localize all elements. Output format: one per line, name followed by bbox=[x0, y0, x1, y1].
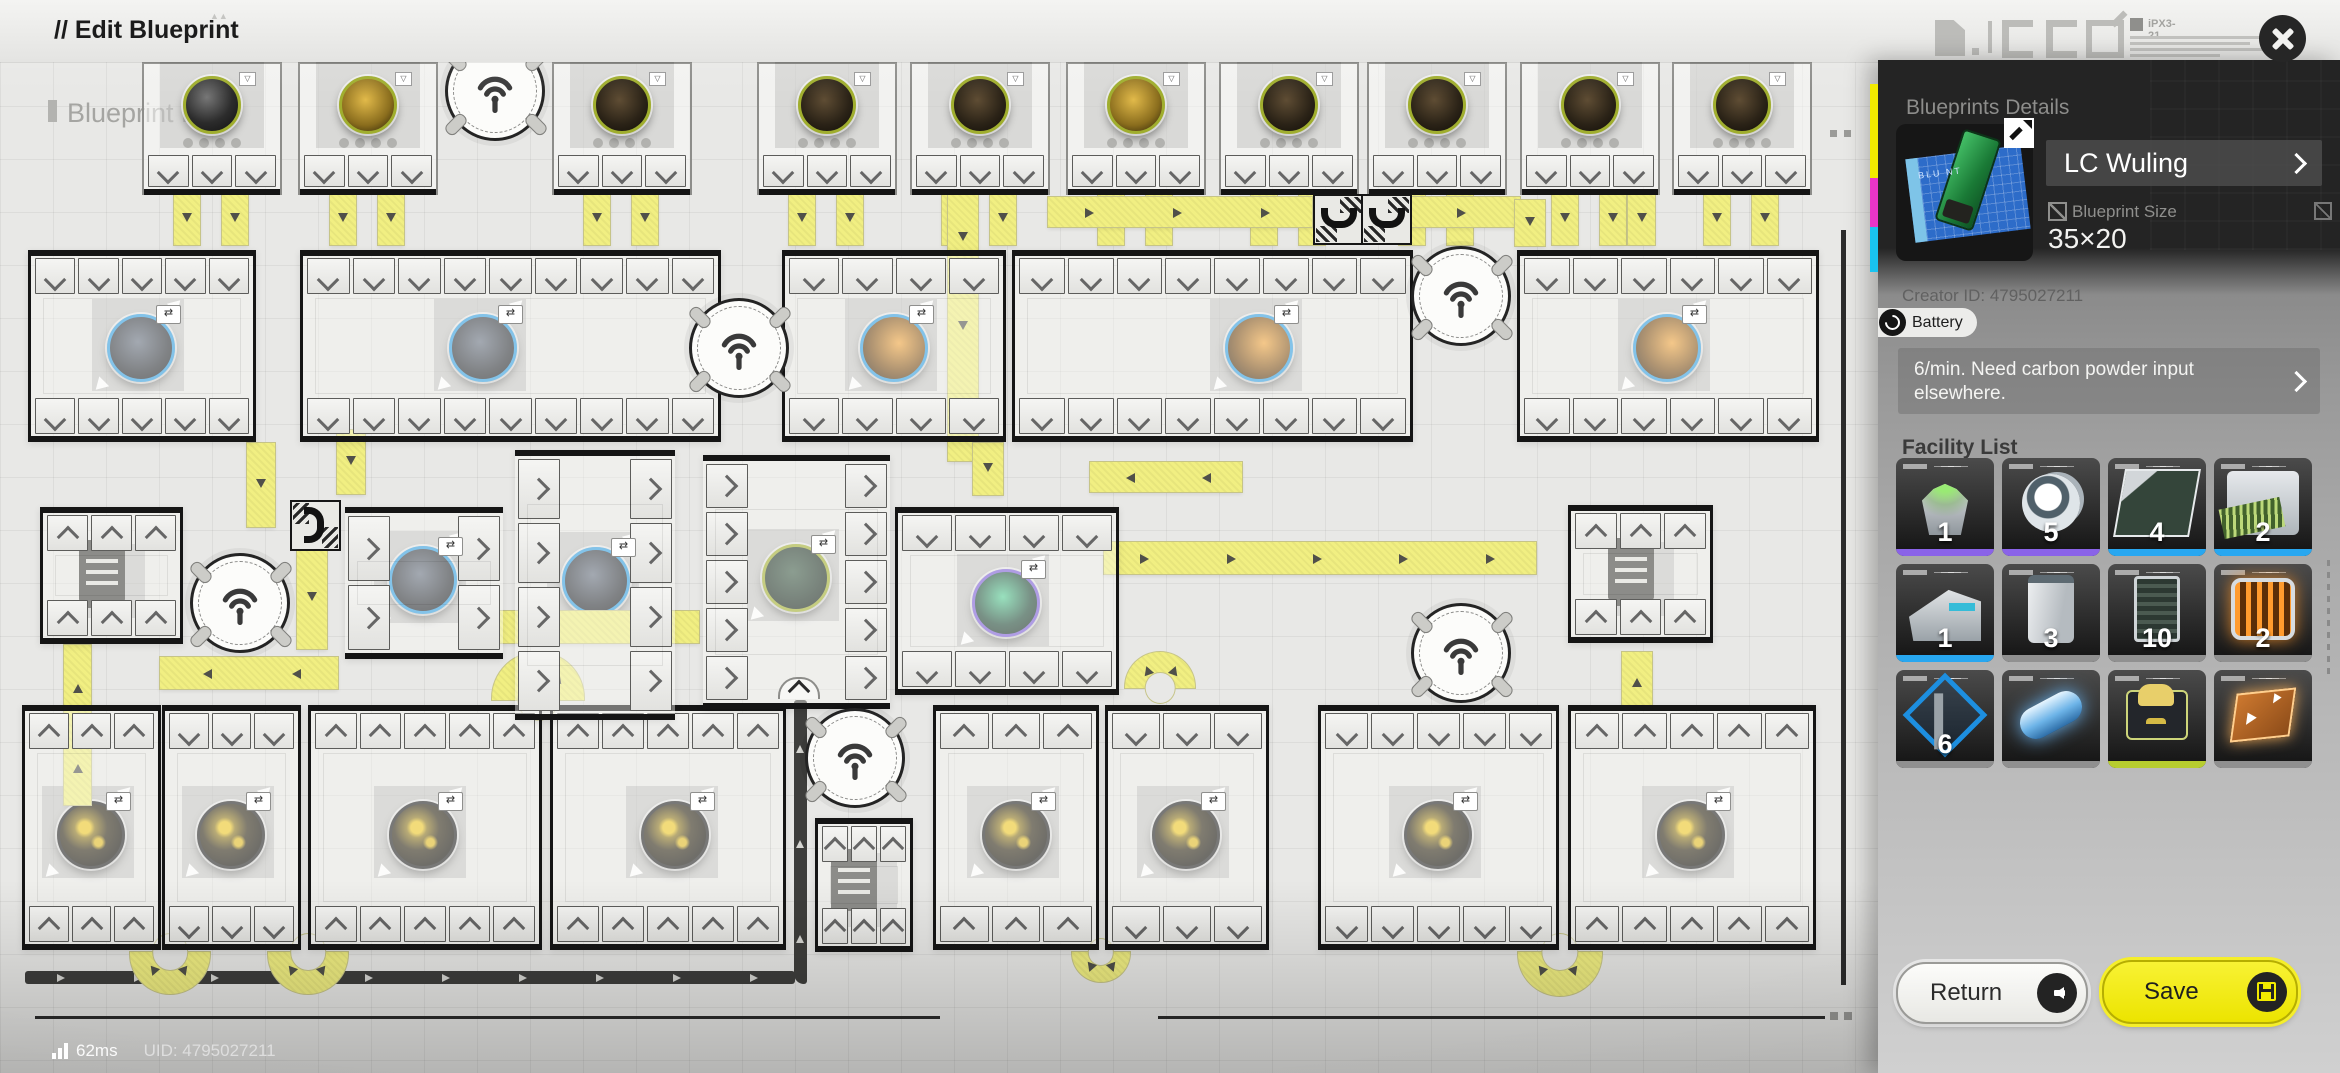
port-column bbox=[518, 459, 560, 711]
antenna-icon bbox=[833, 735, 877, 781]
conveyor-belt[interactable] bbox=[584, 193, 610, 245]
chevron-up-icon bbox=[853, 919, 876, 942]
port bbox=[1526, 155, 1567, 187]
port bbox=[1765, 155, 1806, 187]
port bbox=[1062, 651, 1112, 687]
chevron-up-icon bbox=[1005, 917, 1028, 940]
sorter-tile[interactable] bbox=[290, 500, 341, 551]
chevron-up-icon bbox=[1681, 917, 1704, 940]
belt-arrow-icon bbox=[182, 213, 192, 227]
swap-io-icon[interactable]: ⇄ bbox=[611, 538, 636, 557]
port bbox=[1417, 906, 1460, 942]
port bbox=[822, 826, 848, 862]
swap-io-icon[interactable]: ⇄ bbox=[690, 792, 715, 811]
production-building[interactable] bbox=[300, 250, 721, 442]
swap-io-icon[interactable]: ⇄ bbox=[909, 305, 934, 324]
port bbox=[960, 155, 1001, 187]
sorter-tile[interactable] bbox=[1313, 194, 1364, 245]
port-row bbox=[1015, 396, 1410, 442]
production-building[interactable] bbox=[782, 250, 1006, 442]
production-building[interactable] bbox=[1318, 705, 1559, 950]
chevron-down-icon bbox=[1778, 409, 1801, 432]
port bbox=[1325, 713, 1368, 749]
chevron-up-icon bbox=[953, 917, 976, 940]
port bbox=[626, 258, 669, 294]
port-row bbox=[1522, 153, 1658, 195]
swap-io-icon[interactable]: ⇄ bbox=[1031, 792, 1056, 811]
chevron-up-icon bbox=[1776, 724, 1799, 747]
chevron-down-icon bbox=[1381, 724, 1404, 747]
side-port-building[interactable] bbox=[515, 450, 675, 720]
belt-arrow-icon bbox=[1534, 966, 1548, 983]
port-row bbox=[303, 250, 718, 296]
swap-io-icon[interactable]: ⇄ bbox=[1453, 792, 1478, 811]
swap-io-icon[interactable]: ⇄ bbox=[1682, 305, 1707, 324]
facility-count: 4 bbox=[2108, 517, 2206, 548]
port bbox=[518, 587, 560, 647]
port bbox=[1463, 906, 1506, 942]
chevron-down-icon bbox=[963, 269, 986, 292]
chevron-up-icon bbox=[612, 917, 635, 940]
port-row bbox=[759, 153, 895, 195]
port bbox=[706, 656, 748, 700]
conveyor-belt[interactable] bbox=[160, 657, 338, 689]
chevron-up-icon bbox=[144, 526, 167, 549]
port bbox=[1417, 713, 1460, 749]
port bbox=[1722, 155, 1763, 187]
port bbox=[1718, 258, 1764, 294]
chevron-down-icon bbox=[317, 269, 340, 292]
port bbox=[647, 906, 689, 942]
belt-arrow-icon bbox=[1525, 217, 1535, 231]
port-column bbox=[706, 464, 748, 700]
port bbox=[489, 398, 532, 434]
port bbox=[949, 398, 999, 434]
port bbox=[353, 258, 396, 294]
chevron-down-icon bbox=[363, 409, 386, 432]
size-icon bbox=[2048, 202, 2067, 221]
belt-arrow-icon bbox=[284, 965, 298, 982]
production-building[interactable] bbox=[1012, 250, 1413, 442]
power-antenna[interactable] bbox=[689, 298, 789, 398]
power-antenna[interactable] bbox=[1411, 246, 1511, 346]
facility-tile-belt-plate[interactable] bbox=[2214, 670, 2312, 768]
miner-dots bbox=[593, 138, 651, 148]
facility-tile-press[interactable]: 1 bbox=[1896, 564, 1994, 662]
belt-arrow-icon bbox=[316, 965, 330, 982]
port-row bbox=[912, 153, 1048, 195]
belt-arrow-icon bbox=[1173, 208, 1187, 218]
production-building[interactable] bbox=[1517, 250, 1819, 442]
ore-node bbox=[1713, 76, 1771, 134]
miner-building[interactable]: ▽ bbox=[552, 62, 692, 195]
port bbox=[398, 258, 441, 294]
chevron-down-icon bbox=[1274, 409, 1297, 432]
chevron-up-icon bbox=[1728, 917, 1751, 940]
port bbox=[1165, 398, 1211, 434]
facility-tile-assembler[interactable]: 4 bbox=[2108, 458, 2206, 556]
storage-building[interactable] bbox=[815, 818, 913, 952]
port bbox=[404, 906, 446, 942]
facility-tile-printer[interactable]: 2 bbox=[2214, 458, 2312, 556]
chevron-down-icon bbox=[545, 409, 568, 432]
conveyor-belt[interactable] bbox=[1600, 193, 1626, 245]
conveyor-belt[interactable] bbox=[378, 193, 404, 245]
chevron-down-icon bbox=[1226, 269, 1249, 292]
port bbox=[1717, 906, 1761, 942]
chevron-up-icon bbox=[324, 724, 347, 747]
facility-tile-capsule[interactable] bbox=[2002, 670, 2100, 768]
antenna-icon bbox=[473, 68, 517, 114]
swap-io-icon[interactable]: ⇄ bbox=[246, 792, 271, 811]
chevron-right-icon bbox=[855, 619, 878, 642]
power-antenna[interactable] bbox=[1411, 603, 1511, 703]
chevron-down-icon bbox=[131, 409, 154, 432]
port bbox=[630, 523, 672, 583]
edge-window-icon bbox=[2314, 202, 2332, 220]
chevron-down-icon bbox=[263, 917, 286, 940]
port-row bbox=[1221, 153, 1357, 195]
swap-io-icon[interactable]: ⇄ bbox=[1201, 792, 1226, 811]
back-arrow-icon bbox=[2037, 973, 2077, 1013]
conveyor-belt[interactable] bbox=[1552, 193, 1578, 245]
miner-dots bbox=[951, 138, 1009, 148]
belt-arrow-icon bbox=[797, 213, 807, 227]
production-building[interactable] bbox=[162, 705, 301, 950]
miner-building[interactable]: ▽ bbox=[298, 62, 438, 195]
belt-arrow-icon bbox=[640, 213, 650, 227]
port bbox=[1765, 906, 1809, 942]
port bbox=[1524, 258, 1570, 294]
chevron-right-icon bbox=[2286, 152, 2307, 173]
port-row bbox=[936, 705, 1096, 751]
facility-tile-heater[interactable]: 2 bbox=[2214, 564, 2312, 662]
tile-color-strip bbox=[1896, 761, 1994, 768]
port bbox=[630, 459, 672, 519]
details-panel: Blueprints Details BLU NT LC Wuling Blue… bbox=[1878, 60, 2340, 1073]
miner-building[interactable]: ▽ bbox=[1367, 62, 1507, 195]
miner-dots bbox=[798, 138, 856, 148]
chevron-down-icon bbox=[1128, 409, 1151, 432]
facility-count: 2 bbox=[2214, 623, 2312, 654]
tile-color-strip bbox=[1896, 549, 1994, 556]
chevron-down-icon bbox=[1519, 724, 1542, 747]
antenna-foot bbox=[188, 559, 214, 585]
chevron-down-icon bbox=[408, 409, 431, 432]
port bbox=[850, 155, 891, 187]
decor-line bbox=[2130, 42, 2250, 45]
belt-uturn[interactable] bbox=[1072, 952, 1130, 982]
capsule-icon bbox=[2014, 685, 2087, 744]
belt-uturn[interactable] bbox=[1518, 952, 1602, 996]
port bbox=[1163, 906, 1211, 942]
chevron-up-icon bbox=[369, 917, 392, 940]
swap-io-icon[interactable]: ⇄ bbox=[1274, 305, 1299, 324]
sorter-u-icon bbox=[1321, 208, 1357, 228]
swap-io-icon[interactable]: ⇄ bbox=[156, 305, 181, 324]
chevron-down-icon bbox=[1632, 409, 1655, 432]
miner-dots bbox=[1408, 138, 1466, 148]
miner-building[interactable]: ▽ bbox=[910, 62, 1050, 195]
swap-io-icon[interactable]: ⇄ bbox=[438, 537, 463, 556]
conveyor-belt[interactable] bbox=[973, 443, 1003, 495]
chevron-down-icon bbox=[1176, 917, 1199, 940]
production-building[interactable] bbox=[28, 250, 256, 442]
conveyor-belt[interactable] bbox=[1408, 197, 1520, 227]
port bbox=[78, 398, 118, 434]
chevron-down-icon bbox=[178, 724, 201, 747]
swap-io-icon[interactable]: ⇄ bbox=[1021, 560, 1046, 579]
chevron-up-icon bbox=[38, 917, 61, 940]
save-button[interactable]: Save bbox=[2102, 960, 2298, 1024]
conveyor-belt[interactable] bbox=[1704, 193, 1730, 245]
swap-io-icon[interactable]: ⇄ bbox=[106, 792, 131, 811]
chevron-up-icon bbox=[853, 837, 876, 860]
belt-arrow-icon bbox=[1486, 554, 1500, 564]
conveyor-belt[interactable] bbox=[1622, 652, 1652, 706]
conveyor-belt[interactable] bbox=[1628, 193, 1655, 245]
port-row bbox=[144, 153, 280, 195]
chevron-down-icon bbox=[1081, 162, 1104, 185]
production-building[interactable] bbox=[308, 705, 542, 950]
belt-arrow-icon bbox=[1760, 213, 1770, 227]
port bbox=[165, 398, 205, 434]
chevron-down-icon bbox=[1079, 409, 1102, 432]
port bbox=[902, 515, 952, 551]
ore-node bbox=[183, 76, 241, 134]
miner-building[interactable]: ▽ bbox=[1520, 62, 1660, 195]
swap-io-icon[interactable]: ⇄ bbox=[811, 535, 836, 554]
port-row bbox=[1068, 153, 1204, 195]
conveyor-belt[interactable] bbox=[837, 193, 863, 245]
chevron-down-icon bbox=[1427, 724, 1450, 747]
sorter-hatch bbox=[1316, 226, 1337, 242]
port bbox=[1767, 398, 1813, 434]
port-row bbox=[936, 904, 1096, 950]
conveyor-belt[interactable] bbox=[1752, 193, 1778, 245]
dark-conveyor[interactable] bbox=[794, 700, 807, 984]
return-button[interactable]: Return bbox=[1896, 962, 2088, 1024]
conveyor-belt[interactable] bbox=[222, 193, 248, 245]
chevron-right-icon bbox=[528, 478, 551, 501]
miner-dots bbox=[1260, 138, 1318, 148]
port-row bbox=[1674, 153, 1810, 195]
chevron-down-icon bbox=[969, 662, 992, 685]
belt-arrow-icon bbox=[673, 974, 685, 982]
belt-arrow-icon bbox=[198, 669, 212, 679]
port bbox=[1360, 258, 1406, 294]
chevron-up-icon bbox=[123, 724, 146, 747]
side-port-building[interactable] bbox=[345, 507, 503, 659]
facility-count: 6 bbox=[1896, 729, 1994, 760]
port bbox=[1214, 258, 1260, 294]
facility-tile-silo[interactable]: 10 bbox=[2108, 564, 2206, 662]
conveyor-belt[interactable] bbox=[632, 193, 658, 245]
conveyor-belt[interactable] bbox=[297, 547, 327, 649]
power-antenna[interactable] bbox=[190, 553, 290, 653]
chevron-down-icon bbox=[1031, 409, 1054, 432]
production-building[interactable] bbox=[550, 705, 786, 950]
facility-tile-pylon[interactable]: 6 bbox=[1896, 670, 1994, 768]
port-row bbox=[303, 396, 718, 442]
barcode-decor bbox=[2115, 676, 2139, 681]
power-antenna[interactable] bbox=[805, 708, 905, 808]
antenna-foot bbox=[883, 778, 909, 804]
port bbox=[114, 713, 154, 749]
conveyor-belt[interactable] bbox=[1515, 200, 1545, 246]
chevron-up-icon bbox=[414, 917, 437, 940]
port bbox=[122, 398, 162, 434]
port bbox=[35, 258, 75, 294]
sorter-tile[interactable] bbox=[1361, 194, 1412, 245]
belt-arrow-icon bbox=[796, 741, 804, 753]
production-building[interactable] bbox=[1105, 705, 1269, 950]
port bbox=[1622, 713, 1666, 749]
belt-arrow-icon bbox=[146, 965, 160, 982]
production-building[interactable] bbox=[895, 507, 1119, 695]
miner-building[interactable]: ▽ bbox=[1219, 62, 1359, 195]
description-text: 6/min. Need carbon powder input elsewher… bbox=[1914, 358, 2276, 406]
chevron-right-icon bbox=[855, 475, 878, 498]
belt-uturn[interactable] bbox=[130, 952, 210, 994]
port bbox=[212, 713, 252, 749]
cmy-stripe bbox=[1870, 84, 1878, 272]
belt-uturn[interactable] bbox=[268, 952, 348, 994]
facility-tile-extractor[interactable]: 1 bbox=[1896, 458, 1994, 556]
belt-arrow-icon bbox=[1560, 213, 1570, 227]
bar-decor bbox=[1988, 21, 1992, 53]
production-building[interactable] bbox=[1568, 705, 1816, 950]
port bbox=[518, 523, 560, 583]
chevron-down-icon bbox=[1681, 409, 1704, 432]
conveyor-belt[interactable] bbox=[789, 193, 815, 245]
chevron-right-icon bbox=[716, 523, 739, 546]
miner-building[interactable]: ▽ bbox=[1066, 62, 1206, 195]
port bbox=[535, 258, 578, 294]
belt-uturn[interactable] bbox=[1125, 652, 1195, 688]
conveyor-belt[interactable] bbox=[990, 193, 1016, 245]
chevron-up-icon bbox=[747, 724, 770, 747]
production-building[interactable] bbox=[22, 705, 161, 950]
port bbox=[1062, 515, 1112, 551]
chevron-down-icon bbox=[1079, 269, 1102, 292]
port-row bbox=[43, 507, 180, 553]
chevron-up-icon bbox=[503, 917, 526, 940]
conveyor-belt[interactable] bbox=[1048, 197, 1312, 227]
tile-color-strip bbox=[2214, 655, 2312, 662]
chevron-right-icon bbox=[528, 542, 551, 565]
swap-io-icon[interactable]: ⇄ bbox=[498, 305, 523, 324]
belt-arrow-icon bbox=[998, 213, 1008, 227]
conveyor-belt[interactable] bbox=[247, 443, 275, 527]
side-port-building[interactable] bbox=[703, 455, 890, 709]
chevron-down-icon bbox=[1632, 269, 1655, 292]
edit-name-icon[interactable] bbox=[2004, 118, 2034, 148]
port bbox=[254, 906, 294, 942]
miner-building[interactable]: ▽ bbox=[757, 62, 897, 195]
signal-bars-icon bbox=[52, 1043, 68, 1059]
chevron-down-icon bbox=[1381, 917, 1404, 940]
creator-id: Creator ID: 4795027211 bbox=[1902, 286, 2083, 306]
port bbox=[1112, 906, 1160, 942]
chevron-down-icon bbox=[1278, 162, 1301, 185]
blueprint-name-row[interactable]: LC Wuling bbox=[2046, 140, 2322, 186]
conveyor-belt[interactable] bbox=[174, 193, 200, 245]
port bbox=[1463, 713, 1506, 749]
belt-arrow-icon bbox=[1227, 554, 1241, 564]
chevron-up-icon bbox=[747, 917, 770, 940]
belt-arrow-icon bbox=[1140, 554, 1154, 564]
antenna-foot bbox=[268, 623, 294, 649]
conveyor-belt[interactable] bbox=[1104, 542, 1536, 574]
chevron-down-icon bbox=[44, 409, 67, 432]
chevron-up-icon bbox=[324, 917, 347, 940]
chevron-right-icon bbox=[855, 571, 878, 594]
storage-building[interactable] bbox=[1568, 505, 1713, 643]
dot-decor bbox=[1972, 48, 1979, 55]
stripe-segment bbox=[1870, 84, 1878, 178]
antenna-foot bbox=[1489, 609, 1515, 635]
storage-building[interactable] bbox=[40, 507, 183, 644]
port bbox=[304, 155, 345, 187]
chevron-up-icon bbox=[612, 724, 635, 747]
chevron-down-icon bbox=[363, 269, 386, 292]
bracket-icon bbox=[2046, 20, 2077, 58]
port bbox=[35, 398, 75, 434]
port bbox=[29, 713, 69, 749]
port bbox=[212, 906, 252, 942]
miner-dots bbox=[183, 138, 241, 148]
decor-line bbox=[2130, 54, 2220, 57]
barcode-decor bbox=[1903, 676, 1927, 681]
conveyor-belt[interactable] bbox=[1090, 462, 1242, 492]
miner-building[interactable]: ▽ bbox=[1672, 62, 1812, 195]
belt-arrow-icon bbox=[592, 213, 602, 227]
port bbox=[1765, 713, 1809, 749]
swap-io-icon[interactable]: ⇄ bbox=[1706, 792, 1731, 811]
chevron-up-icon bbox=[1585, 610, 1608, 633]
port bbox=[1112, 713, 1160, 749]
port bbox=[315, 906, 357, 942]
description-box[interactable]: 6/min. Need carbon powder input elsewher… bbox=[1898, 348, 2320, 414]
facility-tile-cabinet[interactable]: 3 bbox=[2002, 564, 2100, 662]
miner-building[interactable]: ▽ bbox=[142, 62, 282, 195]
facility-list-header: Facility List bbox=[1902, 436, 2018, 460]
belt-arrow-icon bbox=[365, 974, 377, 982]
port bbox=[1575, 513, 1617, 549]
facility-tile-refinery[interactable]: 5 bbox=[2002, 458, 2100, 556]
chevron-down-icon bbox=[636, 269, 659, 292]
chevron-down-icon bbox=[1022, 662, 1045, 685]
port bbox=[444, 398, 487, 434]
belt-arrow-icon bbox=[796, 836, 804, 848]
output-badge: Battery bbox=[1878, 308, 1977, 337]
chevron-down-icon bbox=[916, 526, 939, 549]
chevron-up-icon bbox=[567, 724, 590, 747]
conveyor-belt[interactable] bbox=[330, 193, 356, 245]
swap-io-icon[interactable]: ⇄ bbox=[438, 792, 463, 811]
ore-node bbox=[798, 76, 856, 134]
chevron-down-icon bbox=[317, 409, 340, 432]
port bbox=[1009, 515, 1059, 551]
port bbox=[845, 464, 887, 508]
chevron-right-icon bbox=[716, 475, 739, 498]
chevron-down-icon bbox=[1335, 724, 1358, 747]
port bbox=[692, 906, 734, 942]
close-button[interactable] bbox=[2259, 15, 2306, 62]
facility-tile-packer[interactable] bbox=[2108, 670, 2206, 768]
production-building[interactable] bbox=[933, 705, 1099, 950]
